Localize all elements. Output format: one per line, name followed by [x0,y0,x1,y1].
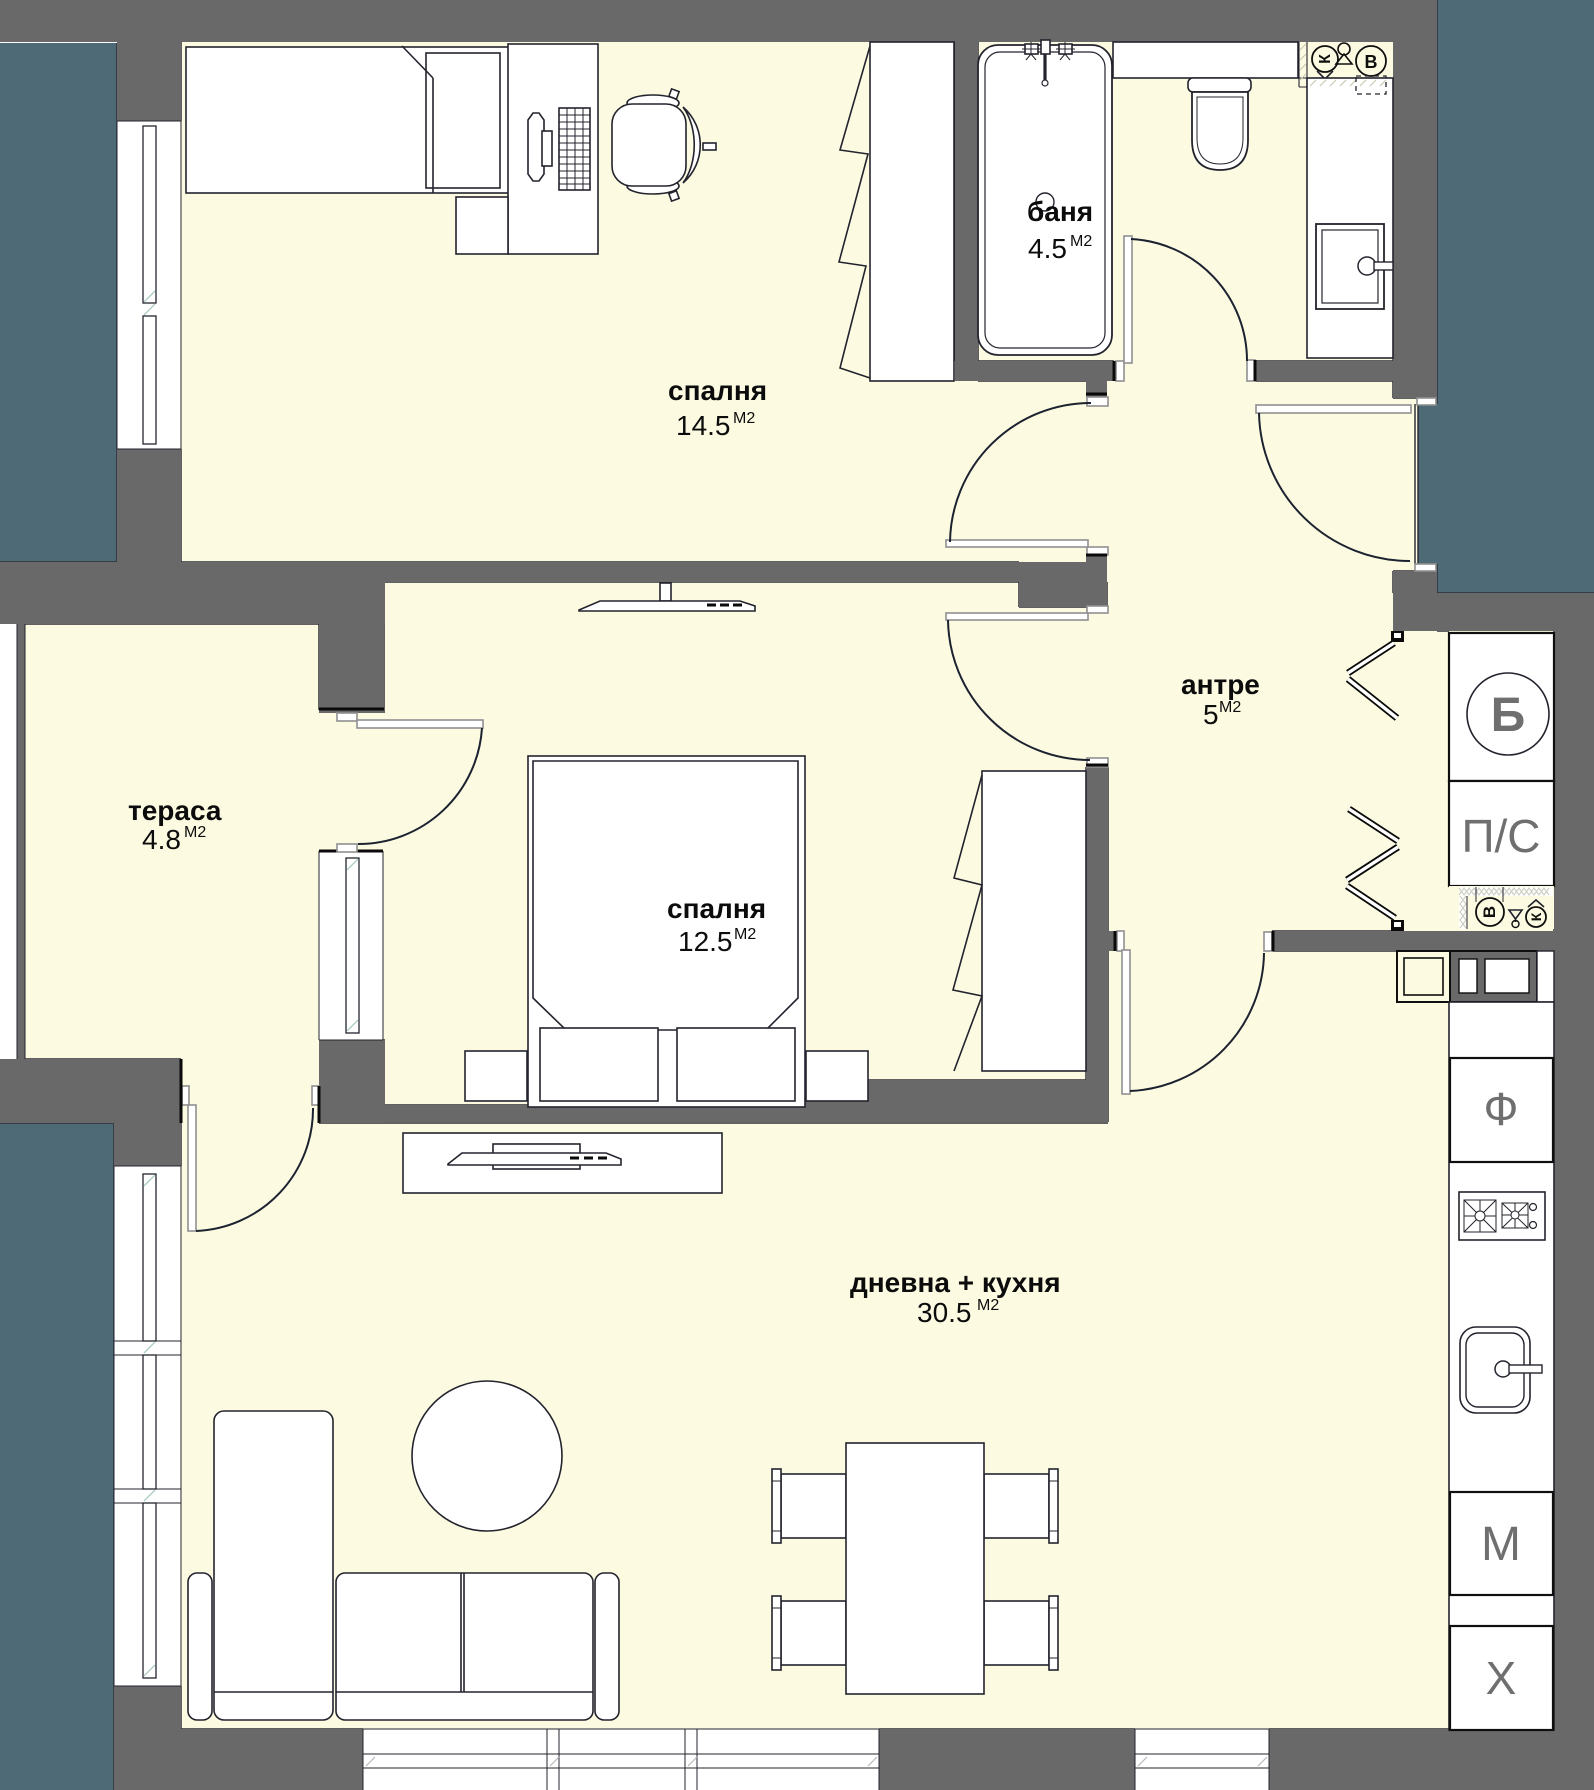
svg-text:М: М [1481,1518,1521,1571]
svg-text:тераса: тераса [128,795,222,826]
svg-text:дневна + кухня: дневна + кухня [850,1267,1061,1298]
svg-text:баня: баня [1027,196,1093,227]
svg-text:К: К [1528,912,1544,921]
svg-text:М2: М2 [734,926,756,943]
svg-text:М2: М2 [1219,699,1241,716]
svg-text:М2: М2 [184,824,206,841]
svg-text:М2: М2 [1070,233,1092,250]
svg-text:14.5: 14.5 [676,410,731,441]
svg-text:В: В [1480,906,1499,918]
svg-text:Б: Б [1491,689,1526,742]
svg-text:4.5: 4.5 [1028,233,1067,264]
svg-text:М2: М2 [977,1297,999,1314]
svg-text:спалня: спалня [668,375,767,406]
svg-text:4.8: 4.8 [142,824,181,855]
svg-text:30.5: 30.5 [917,1297,972,1328]
svg-text:спалня: спалня [667,893,766,924]
svg-text:К: К [1317,54,1334,64]
svg-text:М2: М2 [733,410,755,427]
svg-text:антре: антре [1181,669,1260,700]
svg-text:П/С: П/С [1461,810,1540,862]
svg-text:Х: Х [1486,1652,1517,1704]
svg-text:В: В [1365,52,1378,72]
svg-text:12.5: 12.5 [678,926,733,957]
svg-text:5: 5 [1203,699,1219,730]
svg-text:Ф: Ф [1484,1083,1519,1135]
